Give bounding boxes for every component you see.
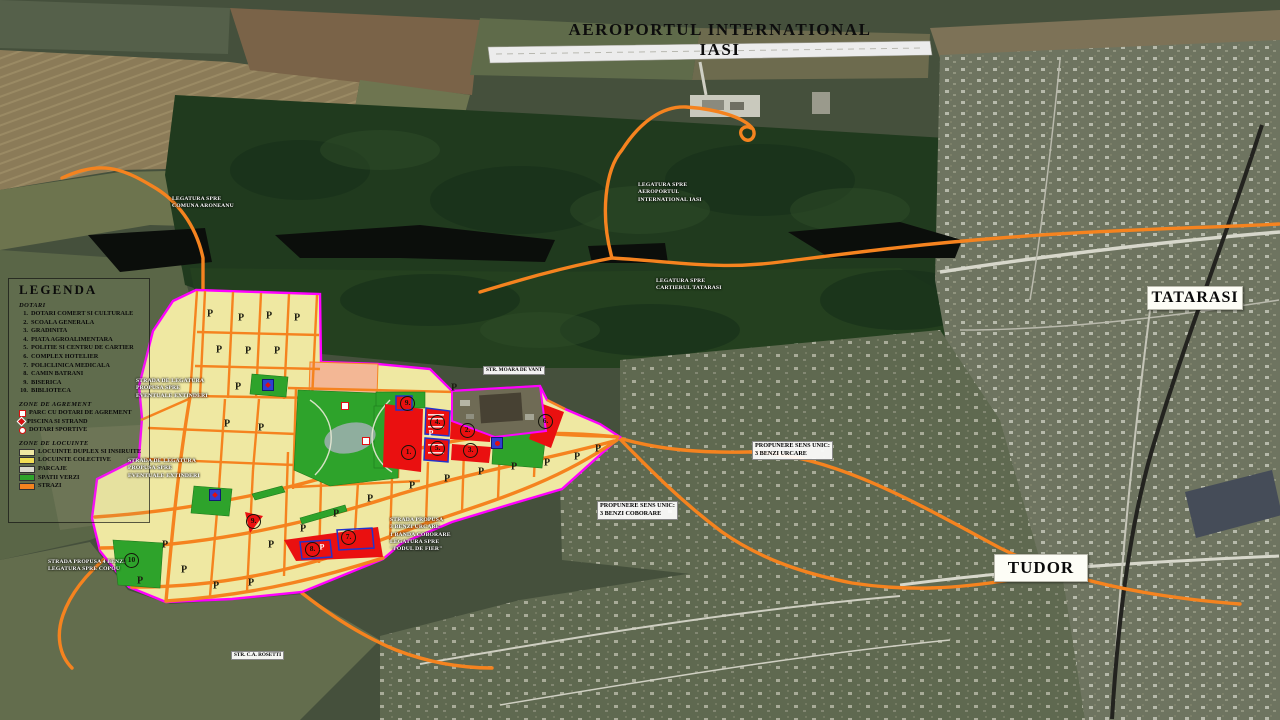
region-label-tudor: TUDOR <box>994 554 1088 582</box>
park-marker <box>362 437 370 445</box>
parking-label: P <box>266 311 272 322</box>
facility-marker-3: 3. <box>463 443 478 458</box>
sport-glyph-icon <box>495 441 500 446</box>
parking-label: P <box>544 458 550 469</box>
legend-swatch <box>19 449 35 456</box>
parking-label: P <box>300 524 306 535</box>
red-diamond-icon <box>18 418 25 425</box>
parking-label: P <box>478 467 484 478</box>
legend: LEGENDA DOTARI1.DOTARI COMERT SI CULTURA… <box>8 278 150 523</box>
parking-label: P <box>162 540 168 551</box>
parking-label: P <box>367 494 373 505</box>
red-circle-icon <box>19 427 26 434</box>
legend-swatch <box>19 483 35 490</box>
legend-section-header: ZONE DE AGREMENT <box>19 401 147 408</box>
parking-label: P <box>213 581 219 592</box>
parking-label: P <box>181 565 187 576</box>
satellite-map-artwork <box>0 0 1280 720</box>
legend-section-header: ZONE DE LOCUINTE <box>19 440 147 447</box>
map-title: AEROPORTUL INTERNATIONAL IASI <box>555 20 885 60</box>
legend-title: LEGENDA <box>19 282 147 298</box>
legend-item: STRAZI <box>19 482 147 491</box>
sport-marker <box>491 437 503 449</box>
legend-item: 7.POLICLINICA MEDICALA <box>19 362 147 371</box>
parking-label: P <box>268 540 274 551</box>
parking-label: P <box>595 444 601 455</box>
parking-label: P <box>235 382 241 393</box>
parking-label: P <box>294 313 300 324</box>
parking-label: P <box>248 578 254 589</box>
parking-label: P <box>574 452 580 463</box>
facility-marker-2: 2. <box>460 423 475 438</box>
parking-label: P <box>511 462 517 473</box>
parking-label: P <box>333 509 339 520</box>
legend-item: 3.GRADINITA <box>19 327 147 336</box>
facility-marker-10: 10 <box>124 553 139 568</box>
facility-marker-5: 5. <box>430 441 445 456</box>
legend-item: LOCUINTE COLECTIVE <box>19 456 147 465</box>
parking-label: P <box>274 346 280 357</box>
parking-label: P <box>451 383 457 394</box>
legend-item: PISCINA SI STRAND <box>19 418 147 427</box>
parking-label: P <box>409 481 415 492</box>
planning-map: AEROPORTUL INTERNATIONAL IASI TATARASI T… <box>0 0 1280 720</box>
facility-marker-9: 9. <box>400 396 415 411</box>
legend-swatch <box>19 457 35 464</box>
legend-swatch <box>19 466 35 473</box>
legend-section-2: ZONE DE LOCUINTELOCUINTE DUPLEX SI INSIR… <box>19 440 147 491</box>
parking-label: P <box>137 576 143 587</box>
legend-item: 5.POLITIE SI CENTRU DE CARTIER <box>19 344 147 353</box>
pool-marker <box>262 379 274 391</box>
parking-label: P <box>320 543 325 552</box>
legend-item: 4.PIATA AGROALIMENTARA <box>19 336 147 345</box>
facility-marker-6: 6. <box>538 414 553 429</box>
parking-label: P <box>444 474 450 485</box>
red-square-icon <box>19 410 26 417</box>
facility-marker-1: 1. <box>401 445 416 460</box>
facility-marker-9: 9. <box>246 514 261 529</box>
pool-marker <box>209 489 221 501</box>
facility-marker-8: 8. <box>305 542 320 557</box>
legend-section-1: ZONE DE AGREMENTPARC CU DOTARI DE AGREME… <box>19 401 147 435</box>
parking-label: P <box>216 345 222 356</box>
parking-label: P <box>429 429 434 438</box>
region-label-tatarasi: TATARASI <box>1147 286 1243 310</box>
parking-label: P <box>207 309 213 320</box>
legend-section-header: DOTARI <box>19 302 147 309</box>
facility-marker-7: 7. <box>341 530 356 545</box>
legend-section-0: DOTARI1.DOTARI COMERT SI CULTURALE2.SCOA… <box>19 302 147 396</box>
legend-sections: DOTARI1.DOTARI COMERT SI CULTURALE2.SCOA… <box>19 302 147 491</box>
legend-item: PARCAJE <box>19 465 147 474</box>
parking-label: P <box>245 346 251 357</box>
legend-item: 6.COMPLEX HOTELIER <box>19 353 147 362</box>
legend-item: SPATII VERZI <box>19 474 147 483</box>
legend-swatch <box>19 474 35 481</box>
parking-label: P <box>238 313 244 324</box>
pool-glyph-icon <box>212 492 218 498</box>
legend-item: 9.BISERICA <box>19 379 147 388</box>
parking-label: P <box>224 419 230 430</box>
legend-item: 2.SCOALA GENERALA <box>19 319 147 328</box>
pool-glyph-icon <box>265 382 271 388</box>
legend-item: 8.CAMIN BATRANI <box>19 370 147 379</box>
legend-item: PARC CU DOTARI DE AGREMENT <box>19 409 147 418</box>
park-marker <box>341 402 349 410</box>
legend-item: 1.DOTARI COMERT SI CULTURALE <box>19 310 147 319</box>
parking-label: P <box>258 423 264 434</box>
legend-item: LOCUINTE DUPLEX SI INSIRUITE <box>19 448 147 457</box>
legend-item: DOTARI SPORTIVE <box>19 426 147 435</box>
legend-item: 10.BIBLIOTECA <box>19 387 147 396</box>
